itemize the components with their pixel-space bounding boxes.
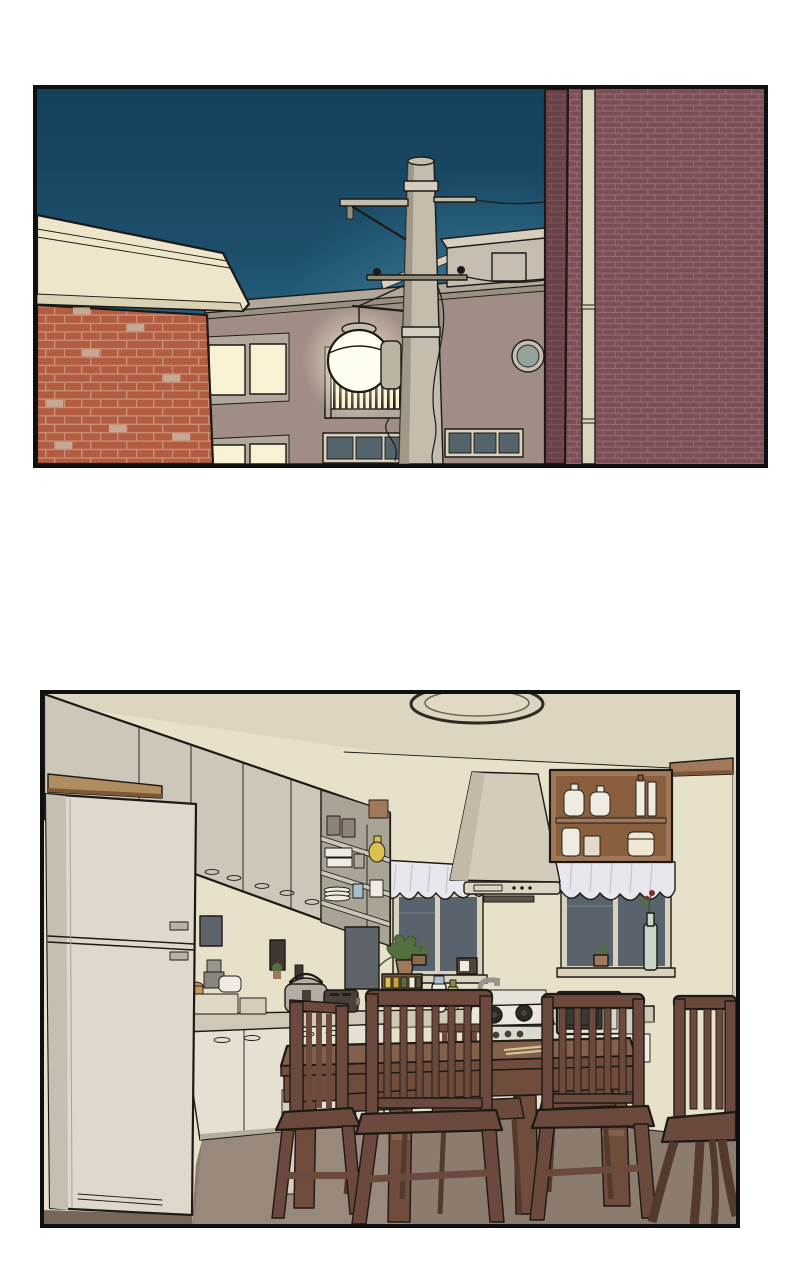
lit-windows (205, 333, 289, 464)
wood-wall-cabinet (550, 770, 672, 862)
plate-stack (324, 887, 350, 901)
porthole-window (512, 340, 544, 372)
ceiling-light (411, 694, 543, 723)
picture-frame (200, 916, 222, 946)
tissue (219, 976, 241, 992)
tiny-plant (272, 963, 282, 979)
cream-jar (370, 880, 383, 897)
spice-rack (382, 974, 422, 991)
window-sill (557, 968, 675, 977)
open-shelves (321, 790, 390, 946)
freezer-handle (170, 922, 188, 930)
street-night-illustration (37, 89, 764, 464)
wood-box (369, 800, 388, 818)
kitchen-clock (457, 958, 477, 974)
panel-kitchen (40, 690, 740, 1228)
blue-cup (353, 884, 363, 898)
panel-street-night (33, 85, 768, 468)
refrigerator (46, 794, 196, 1215)
wall-mirror (345, 927, 379, 989)
kitchen-illustration (44, 694, 736, 1224)
transformer-box (381, 341, 401, 389)
maroon-brick-building (545, 89, 764, 464)
drain-pipe (582, 89, 595, 464)
fridge-handle (170, 952, 188, 960)
pole-collar (404, 181, 438, 191)
pole-collar (402, 327, 440, 337)
